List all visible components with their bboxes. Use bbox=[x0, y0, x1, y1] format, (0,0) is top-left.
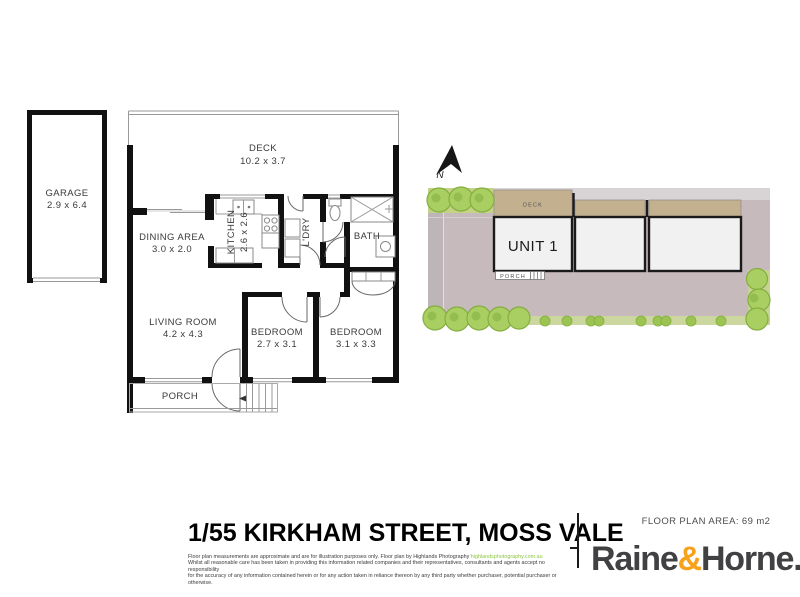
disclaimer-line-2: Whilst all reasonable care has been take… bbox=[188, 560, 574, 573]
dining-dims: 3.0 x 2.0 bbox=[152, 244, 192, 255]
deck-label: DECK bbox=[249, 143, 277, 154]
living-dims: 4.2 x 4.3 bbox=[163, 329, 203, 340]
raine-and-horne-logo: Raine&Horne. bbox=[591, 540, 800, 579]
logo-ampersand: & bbox=[678, 540, 701, 578]
floor-plan-area-label: FLOOR PLAN AREA: 69 m2 bbox=[600, 516, 800, 527]
north-label: N bbox=[436, 170, 444, 181]
garage-label: GARAGE bbox=[45, 188, 88, 199]
bedroom2-label: BEDROOM bbox=[330, 327, 382, 338]
bedroom1-label: BEDROOM bbox=[251, 327, 303, 338]
disclaimer-line-3: for the accuracy of any information cont… bbox=[188, 573, 574, 586]
bedroom2-dims: 3.1 x 3.3 bbox=[336, 339, 376, 350]
floor-plan: GARAGE 2.9 x 6.4 DECK 10.2 x 3.7 bbox=[27, 110, 399, 413]
toilet-icon bbox=[329, 199, 341, 206]
deck-dims: 10.2 x 3.7 bbox=[240, 156, 286, 167]
robe bbox=[352, 272, 395, 295]
washer-icon bbox=[285, 219, 300, 237]
photography-link[interactable]: highlandsphotography.com.au bbox=[471, 554, 543, 560]
kitchen-label: KITCHEN bbox=[226, 210, 237, 255]
bedroom1-dims: 2.7 x 3.1 bbox=[257, 339, 297, 350]
site-porch-label: PORCH bbox=[500, 274, 526, 280]
living-label: LIVING ROOM bbox=[149, 317, 217, 328]
unit3-deck bbox=[649, 200, 741, 217]
unit2-deck bbox=[575, 200, 645, 217]
unit1-label: UNIT 1 bbox=[508, 238, 558, 255]
windows bbox=[145, 195, 372, 382]
porch-stairs bbox=[130, 384, 278, 413]
deck: DECK 10.2 x 3.7 bbox=[129, 111, 399, 196]
unit2-box bbox=[575, 217, 645, 271]
disclaimer: Floor plan measurements are approximate … bbox=[188, 554, 574, 586]
site-plan: DECK UNIT 1 PORCH bbox=[423, 145, 770, 331]
garage-dims: 2.9 x 6.4 bbox=[47, 200, 87, 211]
laundry-label: L'DRY bbox=[301, 217, 312, 246]
dining-label: DINING AREA bbox=[139, 232, 205, 243]
page: { "plan": { "garage": {"name": "GARAGE",… bbox=[0, 0, 800, 597]
footer-divider bbox=[577, 513, 579, 568]
laundry-fixtures bbox=[285, 219, 300, 257]
address-title: 1/55 KIRKHAM STREET, MOSS VALE bbox=[188, 519, 572, 548]
plans-canvas: GARAGE 2.9 x 6.4 DECK 10.2 x 3.7 bbox=[0, 0, 800, 515]
site-deck-label: DECK bbox=[523, 203, 543, 209]
unit3-box bbox=[649, 217, 741, 271]
north-arrow-icon: N bbox=[436, 145, 462, 181]
tub-icon bbox=[285, 239, 300, 257]
bath-label: BATH bbox=[354, 231, 380, 242]
porch-label: PORCH bbox=[162, 391, 198, 402]
bathroom-fixtures bbox=[329, 197, 395, 257]
footer-divider-tick bbox=[570, 547, 577, 549]
garage: GARAGE 2.9 x 6.4 bbox=[27, 110, 107, 283]
kitchen-dims: 2.6 x 2.6 bbox=[239, 212, 250, 252]
